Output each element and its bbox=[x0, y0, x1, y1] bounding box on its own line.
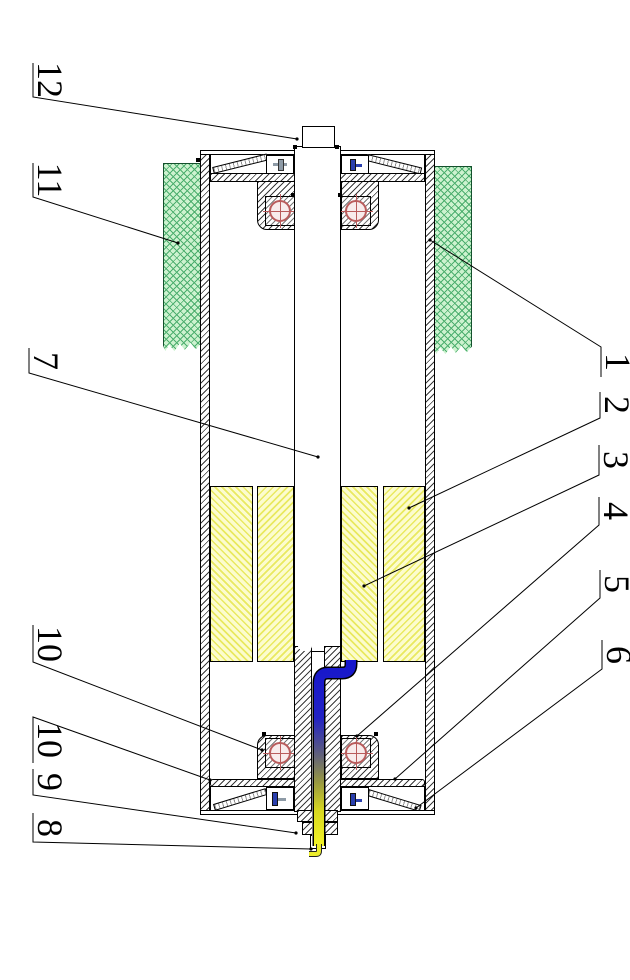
leader-line-3-9 bbox=[364, 445, 599, 586]
leader-line-7-2 bbox=[29, 348, 318, 457]
leader-line-10-3 bbox=[33, 625, 262, 750]
leader-endpoint bbox=[294, 831, 297, 834]
leader-endpoint bbox=[393, 777, 396, 780]
leader-line-4-10 bbox=[357, 497, 599, 736]
drawing-overlay bbox=[0, 0, 630, 980]
leader-endpoint bbox=[428, 238, 431, 241]
leader-endpoint bbox=[316, 455, 319, 458]
patent-figure-canvas: 12117101098123456 bbox=[0, 0, 630, 980]
leader-line-2-8 bbox=[409, 392, 600, 508]
leader-endpoint bbox=[295, 137, 298, 140]
power-cable bbox=[319, 660, 351, 846]
leader-endpoint bbox=[414, 806, 417, 809]
leader-line-11-1 bbox=[33, 163, 178, 243]
leader-endpoint bbox=[362, 584, 365, 587]
leader-line-1-7 bbox=[430, 240, 601, 377]
leader-line-10-4 bbox=[33, 717, 210, 780]
leader-line-6-12 bbox=[416, 640, 602, 808]
leader-line-9-5 bbox=[33, 769, 296, 833]
leader-endpoint bbox=[309, 847, 312, 850]
leader-endpoint bbox=[208, 778, 211, 781]
leader-endpoint bbox=[355, 734, 358, 737]
leader-line-12-0 bbox=[33, 63, 297, 139]
leader-endpoint bbox=[176, 241, 179, 244]
leader-endpoint bbox=[260, 748, 263, 751]
leader-endpoint bbox=[407, 506, 410, 509]
leader-line-8-6 bbox=[33, 813, 311, 849]
